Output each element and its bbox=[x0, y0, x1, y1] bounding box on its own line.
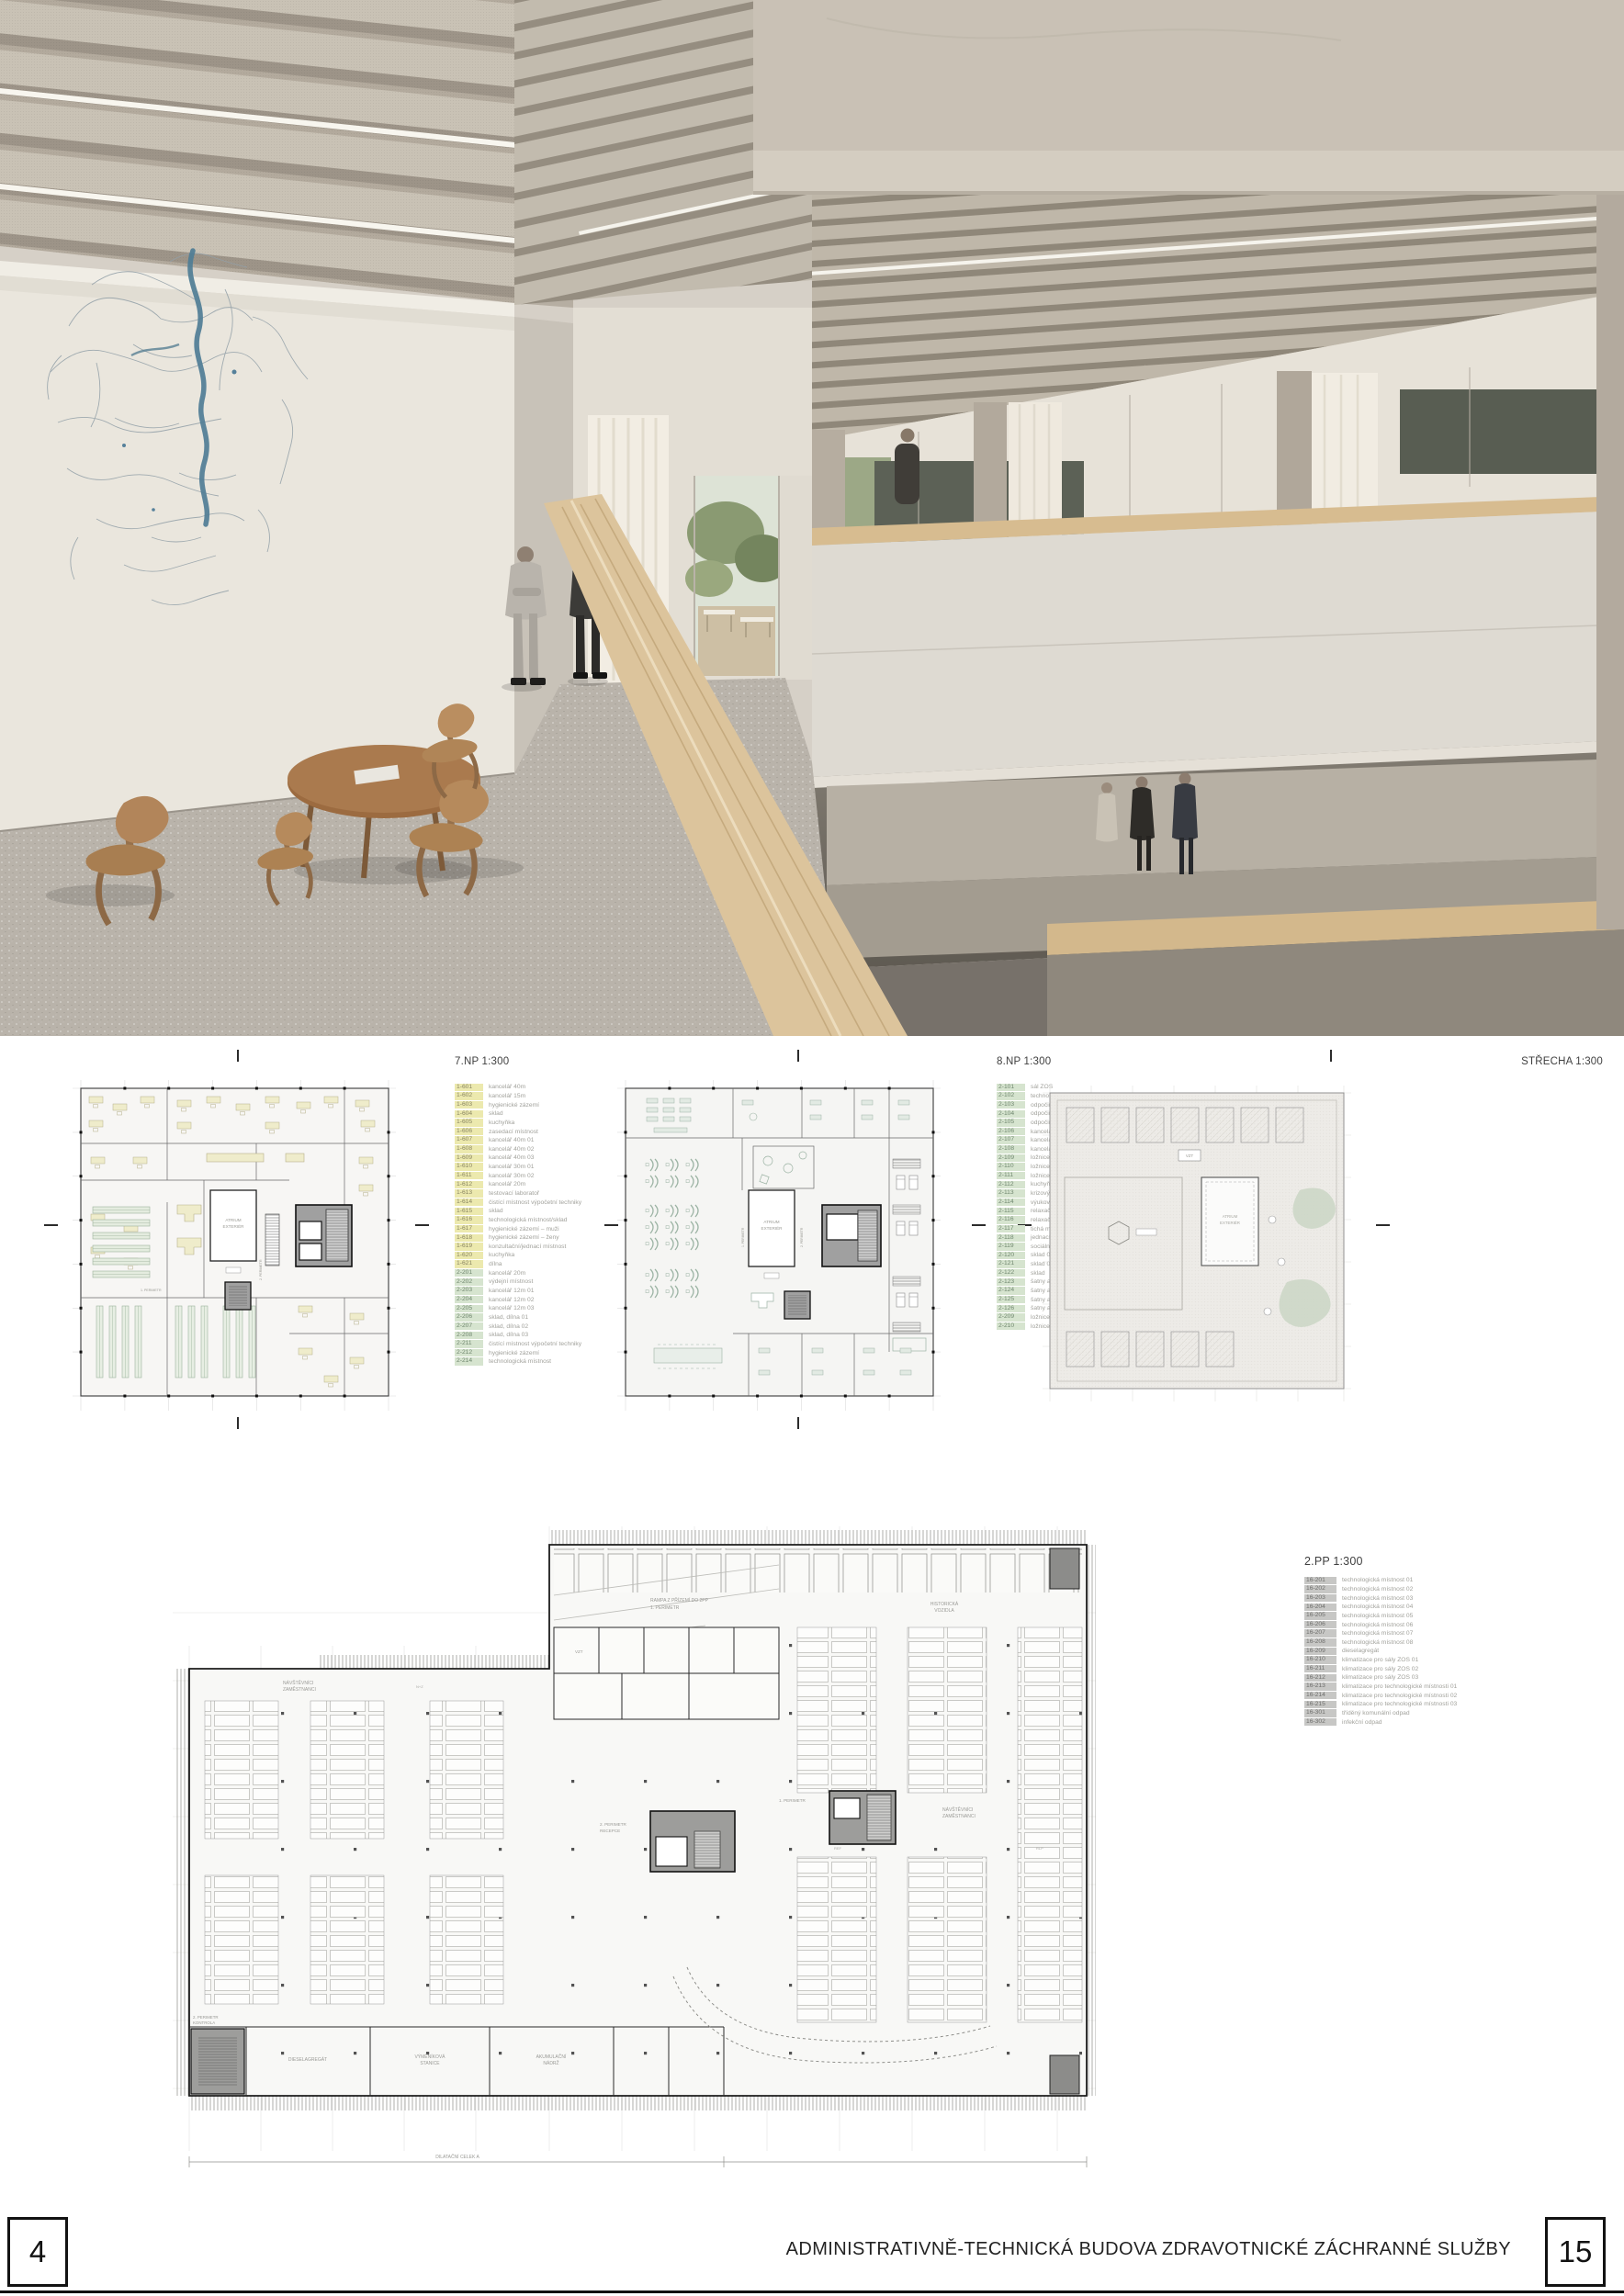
hero-interior-render bbox=[0, 0, 1624, 1036]
section-dash bbox=[44, 1224, 58, 1226]
atrium-label: EXTERIÉR bbox=[223, 1223, 245, 1229]
legend-row: 16-212 klimatizace pro sály ZOS 03 bbox=[1304, 1673, 1457, 1683]
terrace-opening bbox=[685, 476, 790, 676]
dimension-line: DILATAČNÍ CELEK A bbox=[189, 2154, 1087, 2167]
plan-title-2pp: 2.PP 1:300 bbox=[1304, 1555, 1457, 1568]
level-tag bbox=[764, 1273, 779, 1278]
legend-row: 1-603 hygienické zázemí bbox=[455, 1100, 581, 1109]
perimeter-label: 1. PERIMETR bbox=[741, 1227, 745, 1247]
legend-row: 16-213 klimatizace pro technologické mís… bbox=[1304, 1683, 1457, 1692]
legend-row: 1-617 hygienické zázemí – muži bbox=[455, 1224, 581, 1233]
legend-row: 1-616 technologická místnost/sklad bbox=[455, 1216, 581, 1225]
section-dash bbox=[972, 1224, 986, 1226]
atrium-label: EXTERIÉR bbox=[761, 1225, 784, 1231]
legend-row: 1-613 testovací laboratoř bbox=[455, 1189, 581, 1199]
room-label-tank: AKUMULAČNÍ bbox=[536, 2054, 567, 2060]
plan-title-8np: 8.NP 1:300 bbox=[997, 1056, 1112, 1067]
legend-row: 16-202 technologická místnost 02 bbox=[1304, 1585, 1457, 1594]
atrium-label: ATRIUM bbox=[1223, 1214, 1238, 1219]
stall-label: RLP bbox=[1036, 1846, 1043, 1851]
legend-row: 2-214 technologická místnost bbox=[455, 1357, 581, 1367]
legend-rows-2pp: 16-201 technologická místnost 01 16-202 … bbox=[1304, 1576, 1457, 1727]
legend-row: 2-201 kancelář 20m bbox=[455, 1268, 581, 1277]
stair-core-small bbox=[784, 1291, 810, 1319]
room-label-diesel: DIESELAGREGÁT bbox=[288, 2056, 327, 2063]
legend-row: 16-206 technologická místnost 06 bbox=[1304, 1620, 1457, 1629]
legend-row: 2-211 čistící místnost výpočetní technik… bbox=[455, 1340, 581, 1349]
section-tick bbox=[237, 1050, 239, 1062]
stall-label: N+Z bbox=[416, 1684, 423, 1689]
dark-service-box bbox=[1050, 2055, 1079, 2094]
legend-row: 1-610 kancelář 30m 01 bbox=[455, 1163, 581, 1172]
section-tick bbox=[797, 1050, 799, 1062]
legend-row: 1-612 kancelář 20m bbox=[455, 1180, 581, 1189]
legend-row: 16-203 technologická místnost 03 bbox=[1304, 1593, 1457, 1603]
page-number-right: 15 bbox=[1545, 2217, 1606, 2287]
zone-label: ZAMĚSTNANCI bbox=[283, 1685, 316, 1693]
blackboard-right bbox=[1400, 389, 1598, 474]
stair-core-main bbox=[296, 1205, 352, 1266]
historic-vehicles-label: HISTORICKÁ bbox=[930, 1601, 959, 1607]
legend-row: 1-619 konzultační/jednací místnost bbox=[455, 1243, 581, 1252]
page-number-left-value: 4 bbox=[29, 2234, 46, 2269]
legend-row: 1-606 zasedací místnost bbox=[455, 1127, 581, 1136]
page-number-right-value: 15 bbox=[1559, 2234, 1593, 2269]
concrete-soffit bbox=[753, 0, 1624, 195]
perimeter-label: 1. PERIMETR bbox=[141, 1289, 162, 1292]
presentation-board: ATRIUM EXTERIÉR bbox=[0, 0, 1624, 2296]
plan-title-7np: 7.NP 1:300 bbox=[455, 1056, 581, 1067]
atrium-label: EXTERIÉR bbox=[1220, 1221, 1240, 1225]
perimeter-label: 2. PERIMETR bbox=[259, 1259, 263, 1280]
right-edge-column bbox=[1596, 195, 1624, 929]
dilatation-label: DILATAČNÍ CELEK A bbox=[435, 2154, 479, 2160]
technical-rooms bbox=[554, 1627, 779, 1719]
roof-plan: VZT ATRIUM EXTERIÉR bbox=[1041, 1082, 1353, 1405]
dark-service-box bbox=[1050, 1548, 1079, 1589]
legend-row: 1-605 kuchyňka bbox=[455, 1119, 581, 1128]
legend-row: 16-215 klimatizace pro technologické mís… bbox=[1304, 1700, 1457, 1709]
legend-row: 1-611 kancelář 30m 02 bbox=[455, 1171, 581, 1180]
atrium-label: ATRIUM bbox=[763, 1220, 779, 1224]
perimeter-label: KONTROLA bbox=[193, 2020, 215, 2025]
zone-label: NÁVŠTĚVNÍCI bbox=[283, 1679, 313, 1686]
atrium-void: ATRIUM EXTERIÉR bbox=[1201, 1177, 1258, 1266]
legend-row: 1-604 sklad bbox=[455, 1109, 581, 1119]
legend-roof: STŘECHA 1:300 bbox=[1521, 1056, 1603, 1067]
section-dash bbox=[1376, 1224, 1390, 1226]
basement-plan-2pp: HISTORICKÁ VOZIDLA RAMPA Z PŘÍZEMÍ DO 2P… bbox=[136, 1508, 1096, 2197]
atrium-courtyard: ATRIUM EXTERIÉR 1. PERIMETR 2. PERIMETR bbox=[741, 1190, 804, 1278]
stair-core-main bbox=[822, 1205, 881, 1266]
column bbox=[1277, 371, 1312, 527]
room-label-exchanger: VÝMĚNÍKOVÁ bbox=[414, 2053, 445, 2060]
page-number-left: 4 bbox=[7, 2217, 68, 2287]
legend-row: 16-209 dieselagregát bbox=[1304, 1647, 1457, 1656]
stair-core-small bbox=[225, 1282, 251, 1310]
floor-plan-7np: ATRIUM EXTERIÉR bbox=[69, 1076, 400, 1414]
stall-label: REF bbox=[834, 1846, 842, 1851]
ramp-label: 1. PERIMETR bbox=[650, 1605, 680, 1611]
legend-row: 2-208 sklad, dílna 03 bbox=[455, 1331, 581, 1340]
legend-row: 16-302 infekční odpad bbox=[1304, 1717, 1457, 1727]
legend-row: 1-615 sklad bbox=[455, 1207, 581, 1216]
ramp-label: RAMPA Z PŘÍZEMÍ DO 2PP bbox=[650, 1596, 709, 1604]
section-tick bbox=[797, 1417, 799, 1429]
bottom-rule bbox=[0, 2290, 1624, 2293]
perimeter-label: RECEPCE bbox=[600, 1829, 620, 1833]
perimeter-label: 2. PERIMETR bbox=[193, 2015, 219, 2020]
perimeter-label: 1. PERIMETR bbox=[779, 1798, 806, 1803]
legend-row: 2-212 hygienické zázemí bbox=[455, 1348, 581, 1357]
legend-row: 1-608 kancelář 40m 02 bbox=[455, 1144, 581, 1154]
board-title: ADMINISTRATIVNĚ-TECHNICKÁ BUDOVA ZDRAVOT… bbox=[786, 2239, 1511, 2260]
legend-row: 16-208 technologická místnost 08 bbox=[1304, 1638, 1457, 1647]
zone-label: NÁVŠTĚVNÍCI bbox=[942, 1806, 973, 1813]
legend-row: 16-214 klimatizace pro technologické mís… bbox=[1304, 1691, 1457, 1700]
rooftop-units-bottom bbox=[1066, 1332, 1234, 1367]
vzt-label: VZT bbox=[1186, 1154, 1194, 1158]
level-tag bbox=[226, 1267, 241, 1273]
legend-row: 1-620 kuchyňka bbox=[455, 1251, 581, 1260]
legend-row: 1-621 dílna bbox=[455, 1260, 581, 1269]
perimeter-label: 2. PERIMETR bbox=[600, 1822, 627, 1827]
legend-row: 1-607 kancelář 40m 01 bbox=[455, 1136, 581, 1145]
legend-row: 1-614 čistící místnost výpočetní technik… bbox=[455, 1198, 581, 1207]
legend-row: 16-205 technologická místnost 05 bbox=[1304, 1612, 1457, 1621]
legend-row: 16-204 technologická místnost 04 bbox=[1304, 1603, 1457, 1612]
legend-row: 2-202 výdejní místnost bbox=[455, 1277, 581, 1287]
atrium-bridge bbox=[812, 496, 1624, 1036]
legend-7np: 7.NP 1:300 1-601 kancelář 40m 1-602 kanc… bbox=[455, 1056, 581, 1367]
section-dash bbox=[415, 1224, 429, 1226]
legend-row: 16-211 klimatizace pro sály ZOS 02 bbox=[1304, 1664, 1457, 1673]
atrium-label: ATRIUM bbox=[225, 1218, 241, 1222]
legend-row: 2-207 sklad, dílna 02 bbox=[455, 1322, 581, 1331]
historic-vehicles-label: VOZIDLA bbox=[934, 1608, 954, 1614]
legend-row: 16-201 technologická místnost 01 bbox=[1304, 1576, 1457, 1585]
legend-row: 1-602 kancelář 15m bbox=[455, 1092, 581, 1101]
vzt-label: VZT bbox=[575, 1649, 583, 1654]
legend-row: 2-206 sklad, dílna 01 bbox=[455, 1313, 581, 1322]
room-label-tank: NÁDRŽ bbox=[543, 2059, 558, 2066]
legend-row: 2-203 kancelář 12m 01 bbox=[455, 1287, 581, 1296]
section-tick bbox=[237, 1417, 239, 1429]
legend-2pp: 2.PP 1:300 16-201 technologická místnost… bbox=[1304, 1555, 1457, 1727]
bridge-parapet bbox=[812, 511, 1624, 777]
plan-title-roof: STŘECHA 1:300 bbox=[1521, 1056, 1603, 1067]
floor-plan-8np: ATRIUM EXTERIÉR 1. PERIMETR 2. PERIMETR bbox=[614, 1076, 944, 1414]
zone-label: ZAMĚSTNANCI bbox=[942, 1812, 976, 1819]
legend-row: 16-210 klimatizace pro sály ZOS 01 bbox=[1304, 1656, 1457, 1665]
legend-row: 1-601 kancelář 40m bbox=[455, 1083, 581, 1092]
legend-row: 16-301 tříděný komunální odpad bbox=[1304, 1709, 1457, 1718]
legend-row: 1-609 kancelář 40m 03 bbox=[455, 1154, 581, 1163]
perimeter-label: 2. PERIMETR bbox=[800, 1227, 804, 1247]
garage-boxes-row bbox=[554, 1548, 1082, 1593]
legend-row: 1-618 hygienické zázemí – ženy bbox=[455, 1233, 581, 1243]
level-tag bbox=[1136, 1229, 1156, 1235]
legend-row: 16-207 technologická místnost 07 bbox=[1304, 1629, 1457, 1638]
room-label-exchanger: STANICE bbox=[420, 2061, 440, 2066]
section-tick bbox=[1330, 1050, 1332, 1062]
legend-row: 2-204 kancelář 12m 02 bbox=[455, 1295, 581, 1304]
legend-row: 2-205 kancelář 12m 03 bbox=[455, 1304, 581, 1313]
atrium-courtyard: ATRIUM EXTERIÉR bbox=[210, 1190, 256, 1273]
legend-rows-7np: 1-601 kancelář 40m 1-602 kancelář 15m 1-… bbox=[455, 1083, 581, 1367]
